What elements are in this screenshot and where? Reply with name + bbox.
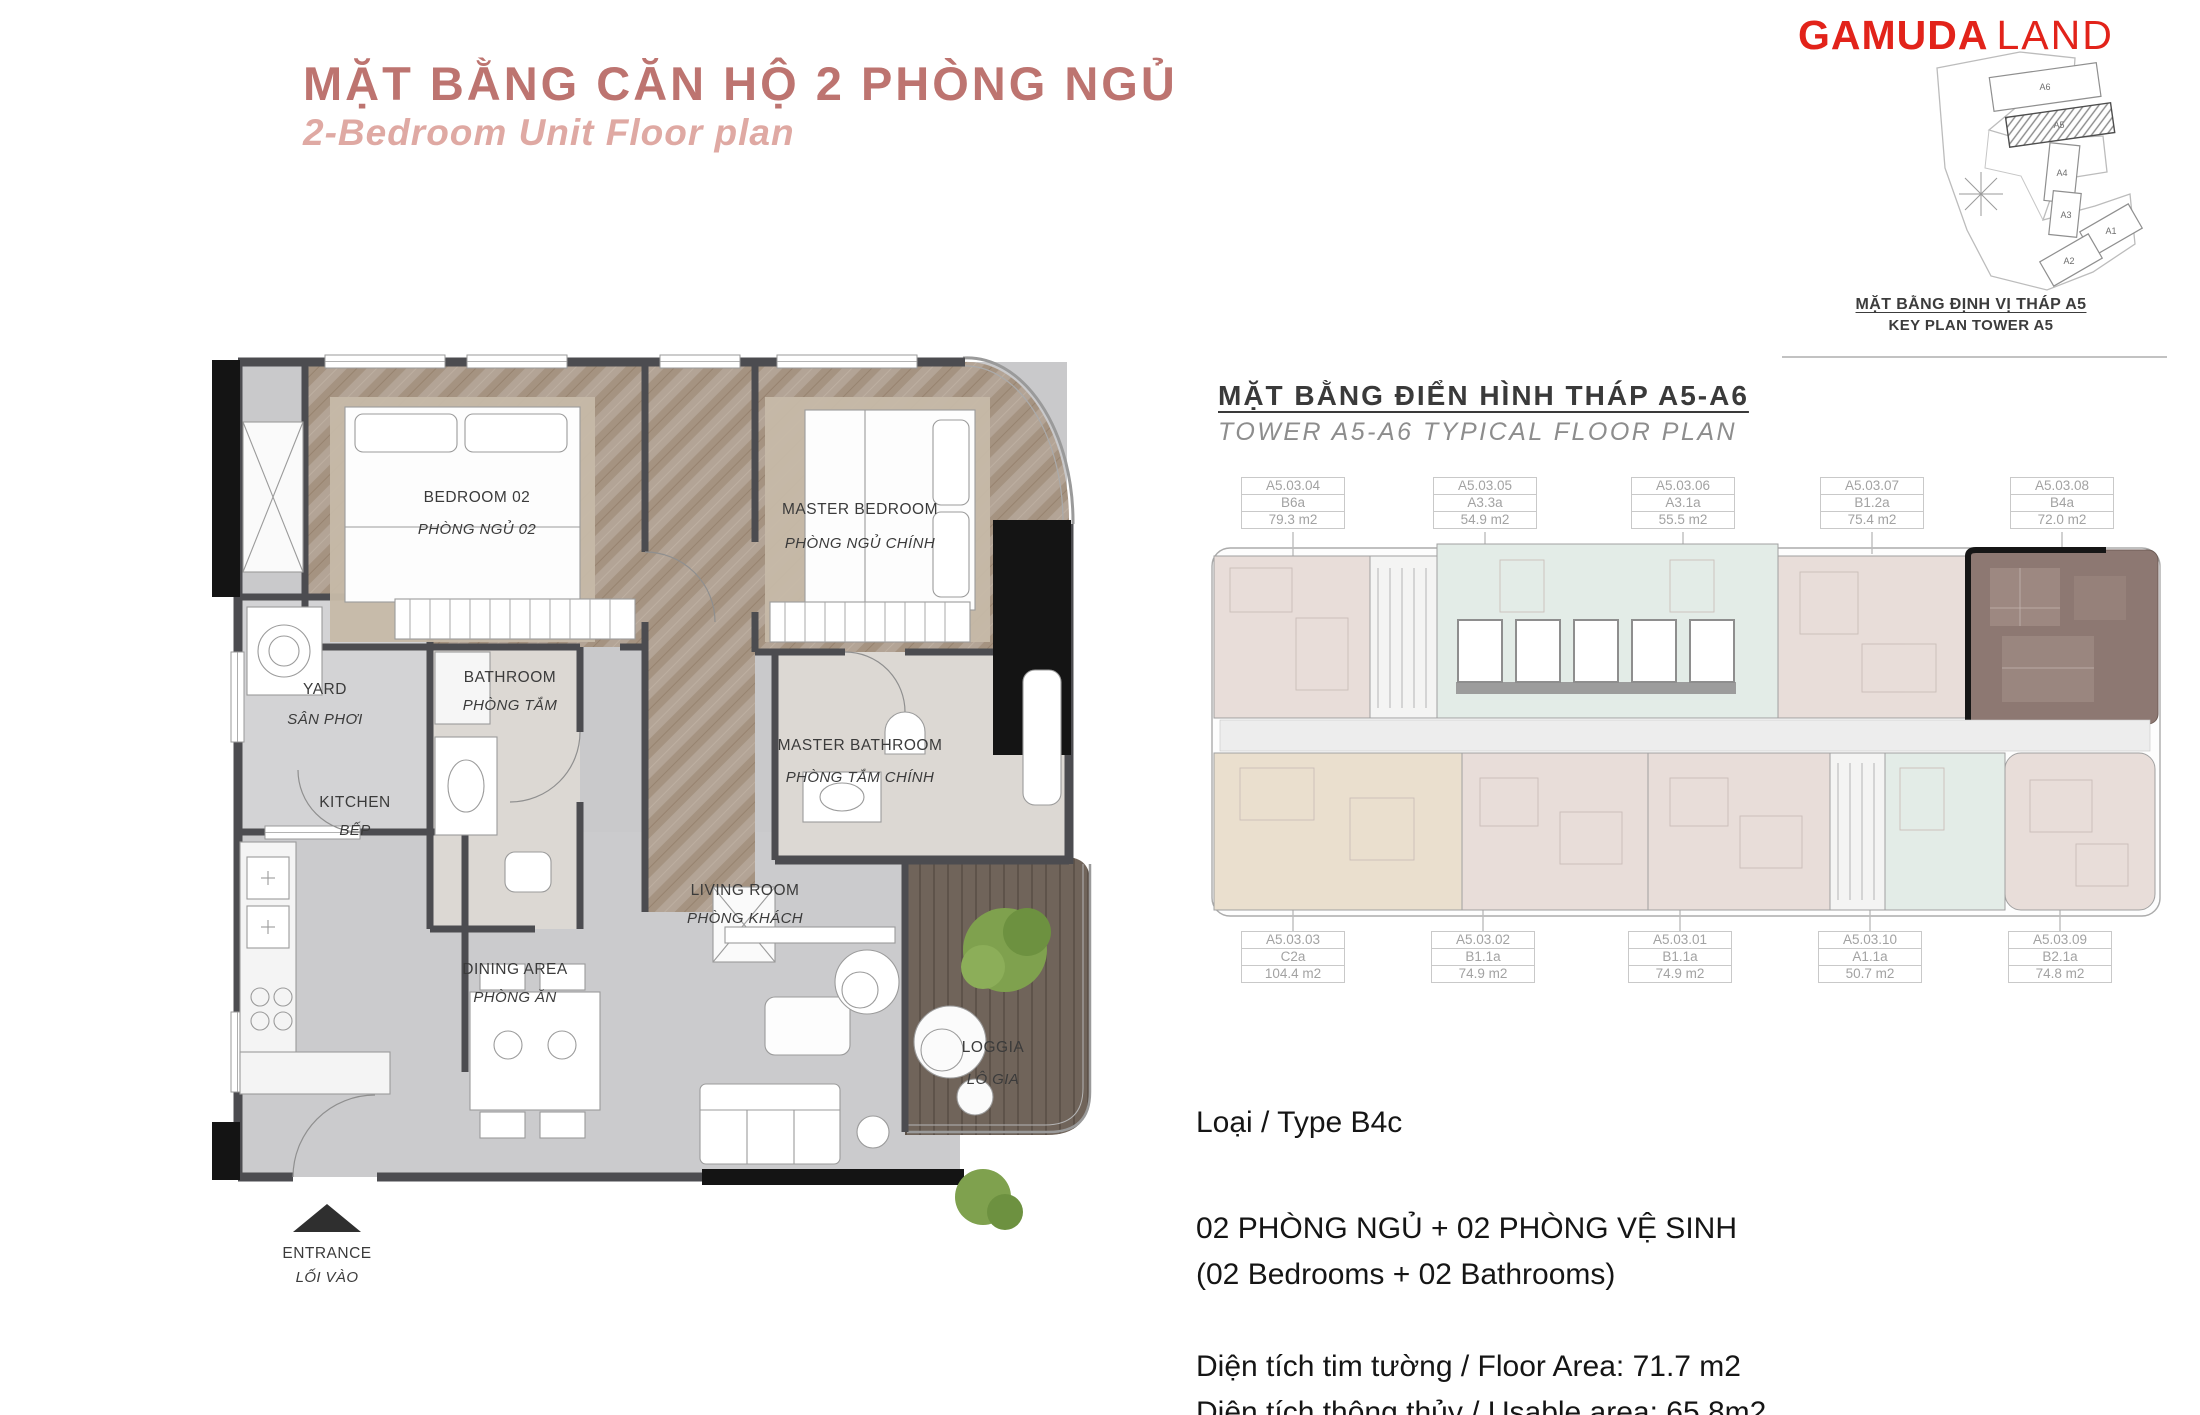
svg-text:LỐI VÀO: LỐI VÀO [296, 1268, 359, 1286]
unit-area: 50.7 m2 [1818, 965, 1922, 983]
svg-text:PHÒNG ĂN: PHÒNG ĂN [473, 989, 556, 1006]
key-plan-caption: MẶT BẰNG ĐỊNH VỊ THÁP A5 KEY PLAN TOWER … [1772, 296, 2170, 334]
unit-b11a-left [1462, 753, 1648, 910]
svg-text:A1: A1 [2105, 226, 2116, 236]
unit-area: 55.5 m2 [1631, 511, 1735, 529]
unit-type: B2.1a [2008, 948, 2112, 966]
unit-area: 54.9 m2 [1433, 511, 1537, 529]
svg-text:PHÒNG TẮM: PHÒNG TẮM [463, 696, 558, 714]
brochure-page: MẶT BẰNG CĂN HỘ 2 PHÒNG NGỦ 2-Bedroom Un… [0, 0, 2200, 1415]
label-master-bathroom: MASTER BATHROOM [778, 737, 943, 754]
unit-config-vi: 02 PHÒNG NGỦ + 02 PHÒNG VỆ SINH [1196, 1206, 1766, 1252]
unit-info-block: Loại / Type B4c 02 PHÒNG NGỦ + 02 PHÒNG … [1196, 1100, 1766, 1415]
label-dining: DINING AREA [462, 961, 568, 978]
unit-label-a5-03-01: A5.03.01 B1.1a 74.9 m2 [1628, 932, 1732, 983]
svg-text:PHÒNG TẮM CHÍNH: PHÒNG TẮM CHÍNH [786, 768, 935, 786]
unit-area: 72.0 m2 [2010, 511, 2114, 529]
svg-text:A5: A5 [2053, 120, 2064, 130]
unit-floor-area: Diện tích tim tường / Floor Area: 71.7 m… [1196, 1344, 1766, 1390]
label-loggia: LOGGIA [962, 1039, 1025, 1056]
unit-type: B6a [1241, 494, 1345, 512]
unit-area: 79.3 m2 [1241, 511, 1345, 529]
svg-text:A6: A6 [2039, 82, 2050, 92]
svg-text:PHÒNG NGỦ CHÍNH: PHÒNG NGỦ CHÍNH [785, 534, 935, 552]
svg-text:A3: A3 [2060, 210, 2071, 220]
unit-label-a5-03-02: A5.03.02 B1.1a 74.9 m2 [1431, 932, 1535, 983]
unit-c2a [1214, 753, 1462, 910]
unit-type: C2a [1241, 948, 1345, 966]
unit-code: A5.03.05 [1433, 477, 1537, 495]
label-yard: YARD [303, 681, 347, 698]
floor-hall [645, 362, 755, 912]
highlighted-unit-b4a [1968, 550, 2158, 724]
svg-text:LÔ GIA: LÔ GIA [967, 1071, 1019, 1088]
stair-core-top [1370, 556, 1437, 718]
unit-code: A5.03.02 [1431, 931, 1535, 949]
label-bathroom: BATHROOM [464, 669, 556, 686]
unit-label-a5-03-08: A5.03.08 B4a 72.0 m2 [2010, 478, 2114, 529]
unit-code: A5.03.09 [2008, 931, 2112, 949]
svg-text:PHÒNG KHÁCH: PHÒNG KHÁCH [687, 910, 803, 927]
unit-b12a [1778, 556, 1968, 718]
unit-code: A5.03.08 [2010, 477, 2114, 495]
unit-label-a5-03-09: A5.03.09 B2.1a 74.8 m2 [2008, 932, 2112, 983]
typical-plan-title-en: TOWER A5-A6 TYPICAL FLOOR PLAN [1218, 418, 1749, 447]
unit-area: 75.4 m2 [1820, 511, 1924, 529]
unit-label-a5-03-03: A5.03.03 C2a 104.4 m2 [1241, 932, 1345, 983]
label-master-bedroom: MASTER BEDROOM [782, 501, 938, 518]
unit-label-a5-03-04: A5.03.04 B6a 79.3 m2 [1241, 478, 1345, 529]
typical-plan-heading: MẶT BẰNG ĐIỂN HÌNH THÁP A5-A6 TOWER A5-A… [1218, 380, 1749, 447]
unit-b21a [2005, 753, 2155, 910]
corridor [1220, 720, 2150, 751]
unit-type-line: Loại / Type B4c [1196, 1100, 1766, 1146]
unit-label-a5-03-10: A5.03.10 A1.1a 50.7 m2 [1818, 932, 1922, 983]
unit-area: 74.8 m2 [2008, 965, 2112, 983]
key-plan-map: A6 A5 A4 A3 A1 A2 [1925, 48, 2170, 293]
elevator-bank [1456, 620, 1736, 694]
unit-usable-area: Diện tích thông thủy / Usable area: 65.8… [1196, 1390, 1766, 1415]
unit-label-a5-03-07: A5.03.07 B1.2a 75.4 m2 [1820, 478, 1924, 529]
unit-label-a5-03-05: A5.03.05 A3.3a 54.9 m2 [1433, 478, 1537, 529]
entrance-marker: ENTRANCE LỐI VÀO [282, 1204, 371, 1286]
unit-area: 74.9 m2 [1431, 965, 1535, 983]
unit-code: A5.03.03 [1241, 931, 1345, 949]
svg-text:A4: A4 [2056, 168, 2067, 178]
compass-star [1959, 172, 2003, 216]
divider-line [1782, 356, 2167, 358]
label-living: LIVING ROOM [691, 882, 800, 899]
page-title: MẶT BẰNG CĂN HỘ 2 PHÒNG NGỦ [303, 56, 1178, 111]
unit-code: A5.03.07 [1820, 477, 1924, 495]
unit-floor-plan-drawing: BEDROOM 02 PHÒNG NGỦ 02 MASTER BEDROOM P… [205, 352, 1105, 1302]
label-kitchen: KITCHEN [319, 794, 391, 811]
unit-area: 104.4 m2 [1241, 965, 1345, 983]
svg-text:BẾP: BẾP [339, 821, 370, 839]
unit-b11a-right [1648, 753, 1830, 910]
unit-a11a [1885, 753, 2005, 910]
key-plan-caption-en: KEY PLAN TOWER A5 [1772, 317, 2170, 334]
svg-text:PHÒNG NGỦ 02: PHÒNG NGỦ 02 [418, 520, 536, 538]
svg-text:SÂN PHƠI: SÂN PHƠI [287, 711, 362, 728]
unit-code: A5.03.04 [1241, 477, 1345, 495]
unit-type: B1.1a [1431, 948, 1535, 966]
key-plan-caption-vi: MẶT BẰNG ĐỊNH VỊ THÁP A5 [1772, 296, 2170, 314]
unit-code: A5.03.01 [1628, 931, 1732, 949]
unit-config-en: (02 Bedrooms + 02 Bathrooms) [1196, 1252, 1766, 1298]
typical-plan-title-vi: MẶT BẰNG ĐIỂN HÌNH THÁP A5-A6 [1218, 380, 1749, 412]
unit-code: A5.03.06 [1631, 477, 1735, 495]
wall-block-bottom [702, 1169, 964, 1185]
floor-loggia [905, 857, 1090, 1135]
label-entrance: ENTRANCE [282, 1245, 371, 1262]
unit-type: B1.1a [1628, 948, 1732, 966]
wall-block-left-top [212, 360, 240, 597]
unit-code: A5.03.10 [1818, 931, 1922, 949]
unit-type: B4a [2010, 494, 2114, 512]
unit-type: A3.1a [1631, 494, 1735, 512]
unit-type: A1.1a [1818, 948, 1922, 966]
unit-area: 74.9 m2 [1628, 965, 1732, 983]
unit-label-a5-03-06: A5.03.06 A3.1a 55.5 m2 [1631, 478, 1735, 529]
entrance-arrow-icon [293, 1204, 361, 1232]
unit-type: A3.3a [1433, 494, 1537, 512]
typical-floor-plan: A5.03.04 B6a 79.3 m2 A5.03.05 A3.3a 54.9… [1200, 468, 2185, 1013]
page-subtitle: 2-Bedroom Unit Floor plan [303, 112, 795, 154]
label-bedroom02: BEDROOM 02 [424, 489, 531, 506]
unit-type: B1.2a [1820, 494, 1924, 512]
svg-text:A2: A2 [2063, 256, 2074, 266]
wall-block-left-bottom [212, 1122, 240, 1180]
